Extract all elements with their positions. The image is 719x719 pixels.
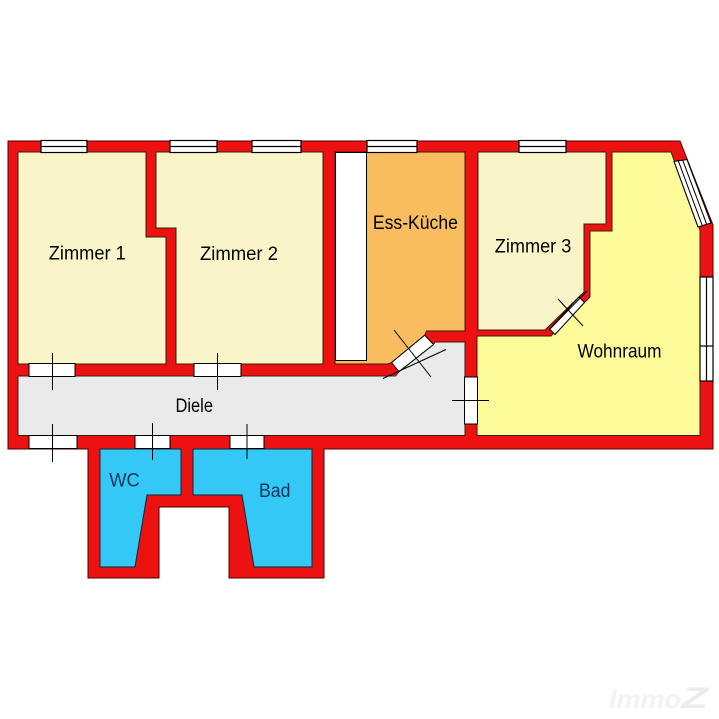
svg-text:Zimmer 2: Zimmer 2: [200, 244, 278, 265]
svg-text:Immo: Immo: [609, 684, 681, 714]
svg-text:Zimmer 3: Zimmer 3: [495, 237, 572, 258]
svg-text:Z: Z: [680, 682, 711, 715]
svg-text:WC: WC: [109, 471, 140, 492]
svg-text:Wohnraum: Wohnraum: [578, 342, 662, 363]
svg-text:Zimmer 1: Zimmer 1: [49, 244, 126, 265]
svg-text:Ess-Küche: Ess-Küche: [373, 213, 458, 234]
svg-text:Bad: Bad: [259, 481, 291, 502]
svg-text:Diele: Diele: [176, 396, 214, 417]
